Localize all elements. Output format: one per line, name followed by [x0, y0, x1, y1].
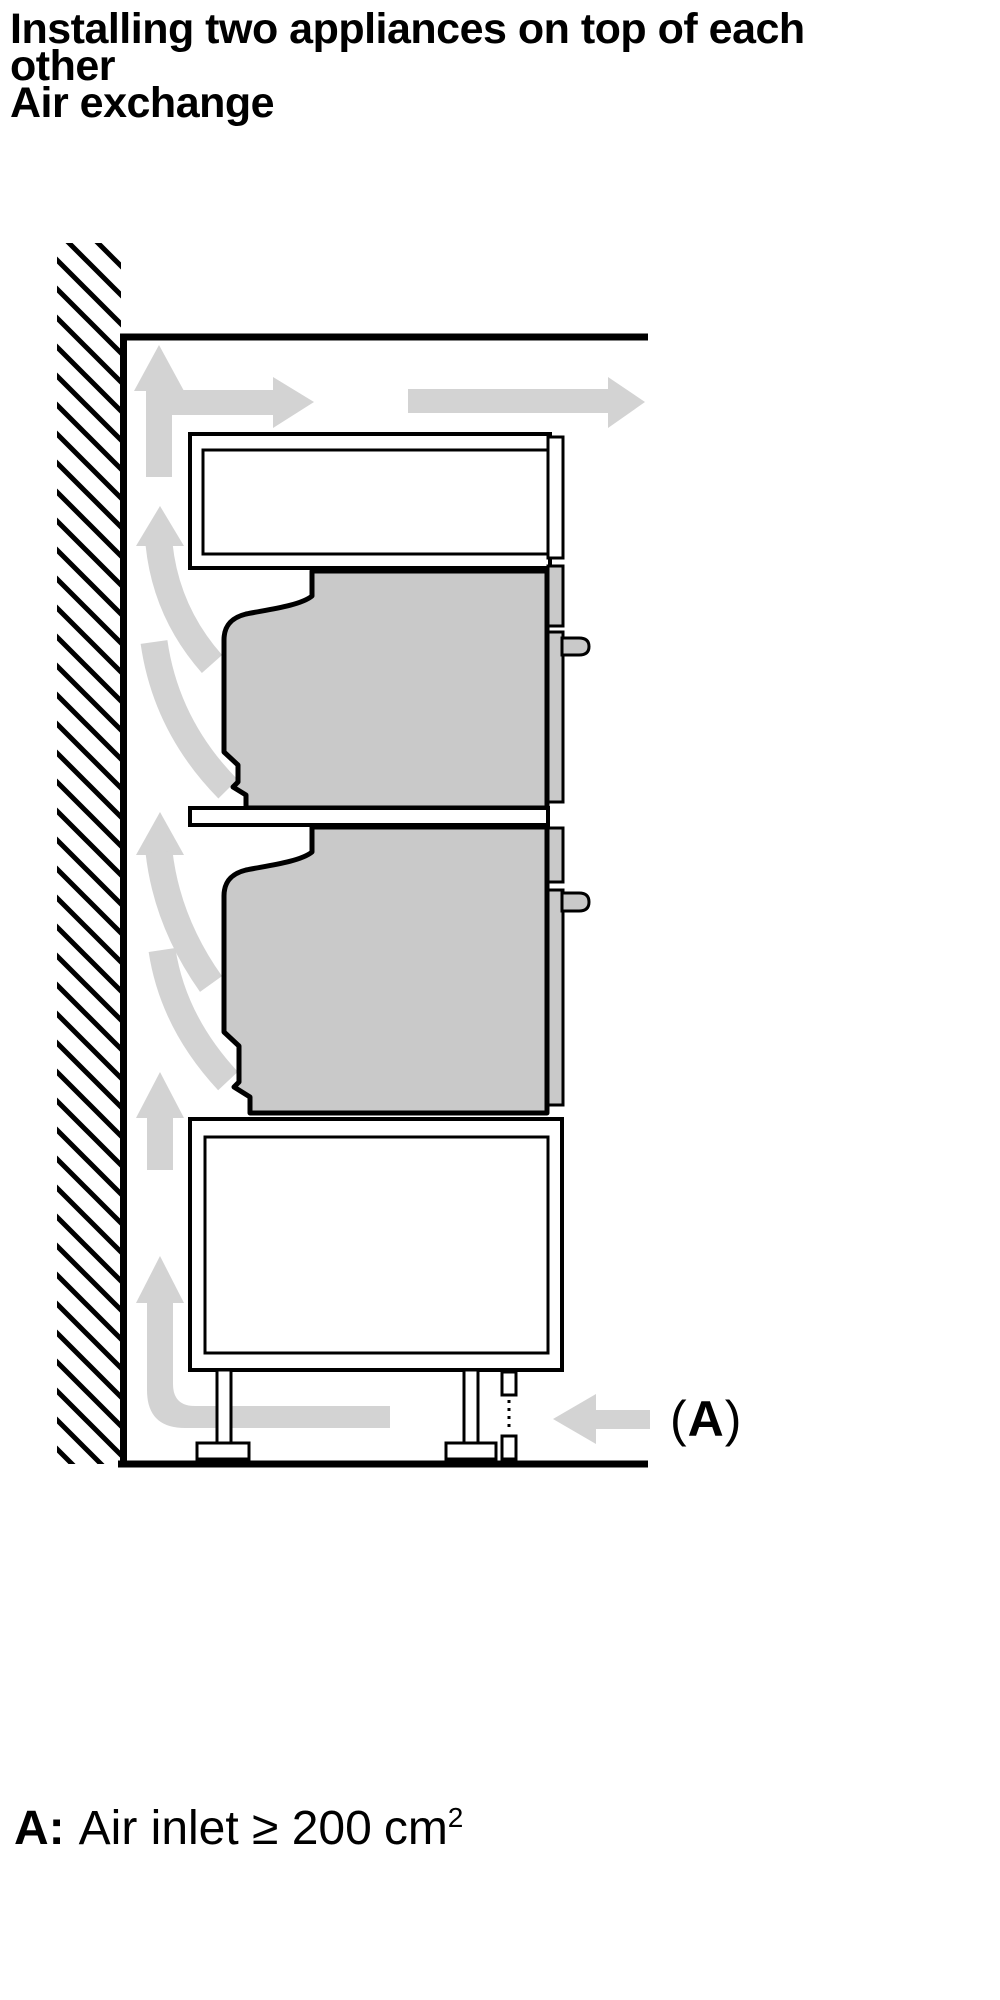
lower-appliance-handle	[562, 893, 589, 911]
airflow-branch-arrow-head	[273, 377, 314, 428]
top-compartment-inner	[203, 450, 548, 554]
right-leg-foot	[446, 1443, 496, 1459]
base-cabinet-inner	[205, 1137, 548, 1353]
left-leg-stem	[217, 1370, 231, 1443]
installation-diagram	[0, 0, 1000, 2000]
spacer-block-bottom	[502, 1436, 516, 1459]
upper-appliance-control-panel	[548, 566, 563, 626]
middle-shelf	[190, 808, 548, 825]
left-leg-foot	[197, 1443, 249, 1459]
airflow-top-arrow-head	[608, 377, 645, 428]
legend-unit: cm	[384, 1802, 448, 1855]
airflow-top-arrow-shaft	[408, 389, 609, 413]
airflow-up-arrow-shaft-mid	[147, 1115, 173, 1170]
lower-appliance-body	[224, 827, 547, 1113]
right-leg-stem	[464, 1370, 478, 1443]
legend-exponent: 2	[448, 1802, 464, 1833]
airflow-swoosh-head-upper	[136, 506, 184, 546]
wall-hatching-icon	[57, 243, 121, 1464]
airflow-swoosh-head-lower	[136, 812, 184, 855]
air-inlet-label-close-paren: )	[725, 1391, 743, 1447]
airflow-up-arrow-head-mid	[136, 1072, 184, 1118]
spacer-block-top	[502, 1372, 516, 1395]
air-inlet-arrow-shaft	[595, 1410, 650, 1429]
lower-appliance-control-panel	[548, 828, 563, 882]
airflow-branch-arrow-shaft	[159, 390, 273, 415]
upper-appliance-handle	[562, 638, 589, 655]
legend-note: A:Air inlet ≥ 200cm2	[14, 1791, 463, 1856]
air-inlet-label-letter: A	[688, 1391, 725, 1447]
air-inlet-arrow-head	[553, 1394, 596, 1444]
lower-appliance-door	[548, 890, 563, 1105]
air-inlet-label: (A)	[670, 1390, 742, 1448]
legend-key: A:	[14, 1802, 65, 1855]
legend-text: Air inlet ≥ 200	[79, 1802, 372, 1855]
upper-appliance-door	[548, 632, 563, 802]
manual-page: Installing two appliances on top of each…	[0, 0, 1000, 2000]
airflow-up-arrow-head-top	[134, 345, 184, 391]
upper-appliance-body	[224, 571, 547, 808]
air-inlet-label-open-paren: (	[670, 1391, 688, 1447]
top-compartment-front-bar	[548, 437, 563, 558]
airflow-swoosh-band-b-upper	[154, 642, 228, 789]
airflow-corner-arrow-head	[136, 1256, 184, 1303]
